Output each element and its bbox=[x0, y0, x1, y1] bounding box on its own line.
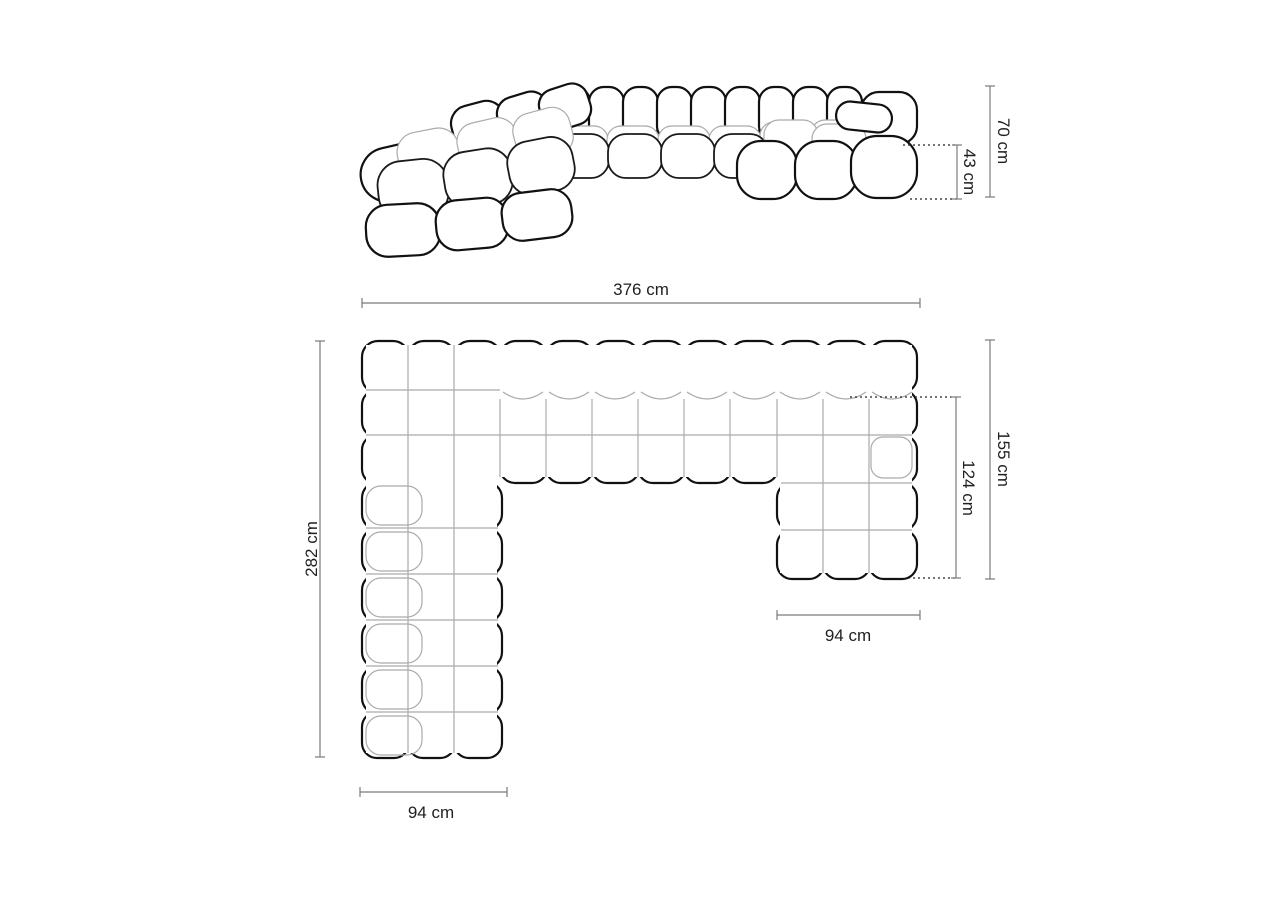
dimension-94cm-right bbox=[777, 610, 920, 620]
bubble bbox=[737, 141, 797, 199]
top-plan-view bbox=[362, 341, 955, 758]
sofa-dimension-diagram: 70 cm 43 cm 376 cm 282 cm 155 cm 124 cm … bbox=[0, 0, 1280, 905]
bubble bbox=[851, 136, 917, 198]
dimension-label-chaise-depth: 124 cm bbox=[959, 460, 978, 516]
dimension-label-back-height: 70 cm bbox=[994, 118, 1013, 164]
bubble bbox=[661, 134, 715, 178]
bubble bbox=[365, 202, 442, 258]
dimension-155cm bbox=[985, 340, 995, 579]
bubble bbox=[434, 196, 510, 252]
dimension-label-total-width: 376 cm bbox=[613, 280, 669, 299]
bubble bbox=[795, 141, 857, 199]
bubble bbox=[499, 187, 574, 243]
dimension-label-right-module-width: 94 cm bbox=[825, 626, 871, 645]
interior-fill bbox=[780, 345, 912, 573]
bubble bbox=[608, 134, 662, 178]
right-armrest-roll bbox=[835, 100, 894, 134]
dimension-70cm bbox=[985, 86, 995, 197]
diagram-svg: 70 cm 43 cm 376 cm 282 cm 155 cm 124 cm … bbox=[0, 0, 1280, 905]
dimension-label-right-depth: 155 cm bbox=[994, 431, 1013, 487]
interior-fill bbox=[366, 345, 497, 753]
dimension-94cm-left bbox=[360, 787, 507, 797]
dimension-label-left-depth: 282 cm bbox=[302, 521, 321, 577]
dimension-label-left-module-width: 94 cm bbox=[408, 803, 454, 822]
dimension-label-seat-height: 43 cm bbox=[960, 149, 979, 195]
dimension-376cm bbox=[362, 298, 920, 308]
left-wing bbox=[355, 79, 595, 258]
front-perspective-view bbox=[355, 79, 957, 258]
